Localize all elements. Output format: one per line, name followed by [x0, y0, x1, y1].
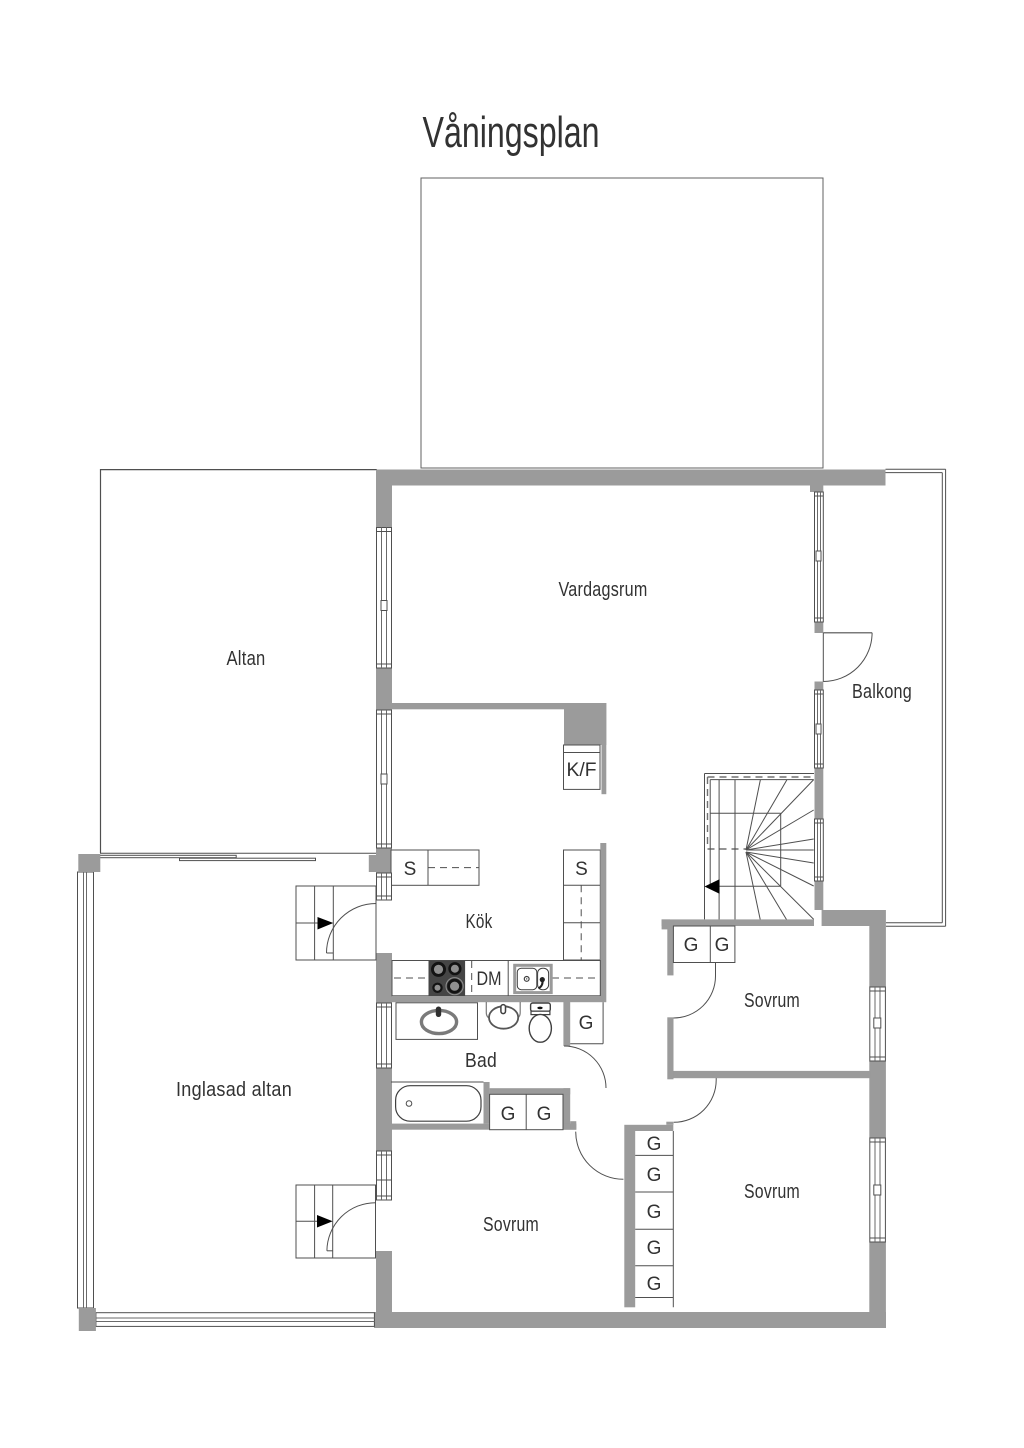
svg-text:Kök: Kök: [466, 911, 494, 933]
svg-text:S: S: [575, 859, 588, 880]
svg-text:G: G: [647, 1274, 662, 1295]
svg-text:Sovrum: Sovrum: [744, 1181, 800, 1203]
svg-text:G: G: [647, 1134, 662, 1155]
svg-text:G: G: [537, 1104, 552, 1125]
svg-text:Balkong: Balkong: [852, 681, 912, 703]
svg-text:Sovrum: Sovrum: [744, 990, 800, 1012]
svg-text:G: G: [501, 1104, 516, 1125]
svg-text:G: G: [647, 1165, 662, 1186]
svg-text:G: G: [715, 935, 730, 956]
svg-text:Altan: Altan: [227, 648, 266, 670]
svg-text:Inglasad altan: Inglasad altan: [176, 1079, 292, 1101]
svg-text:DM: DM: [477, 969, 502, 990]
svg-text:G: G: [684, 935, 699, 956]
svg-text:G: G: [647, 1202, 662, 1223]
svg-text:Vardagsrum: Vardagsrum: [559, 579, 648, 601]
svg-text:G: G: [579, 1013, 594, 1034]
svg-text:Sovrum: Sovrum: [483, 1214, 539, 1236]
svg-text:K/F: K/F: [567, 760, 597, 781]
svg-text:Våningsplan: Våningsplan: [423, 108, 600, 157]
svg-text:Bad: Bad: [465, 1050, 497, 1072]
svg-text:S: S: [404, 859, 417, 880]
svg-text:G: G: [647, 1238, 662, 1259]
